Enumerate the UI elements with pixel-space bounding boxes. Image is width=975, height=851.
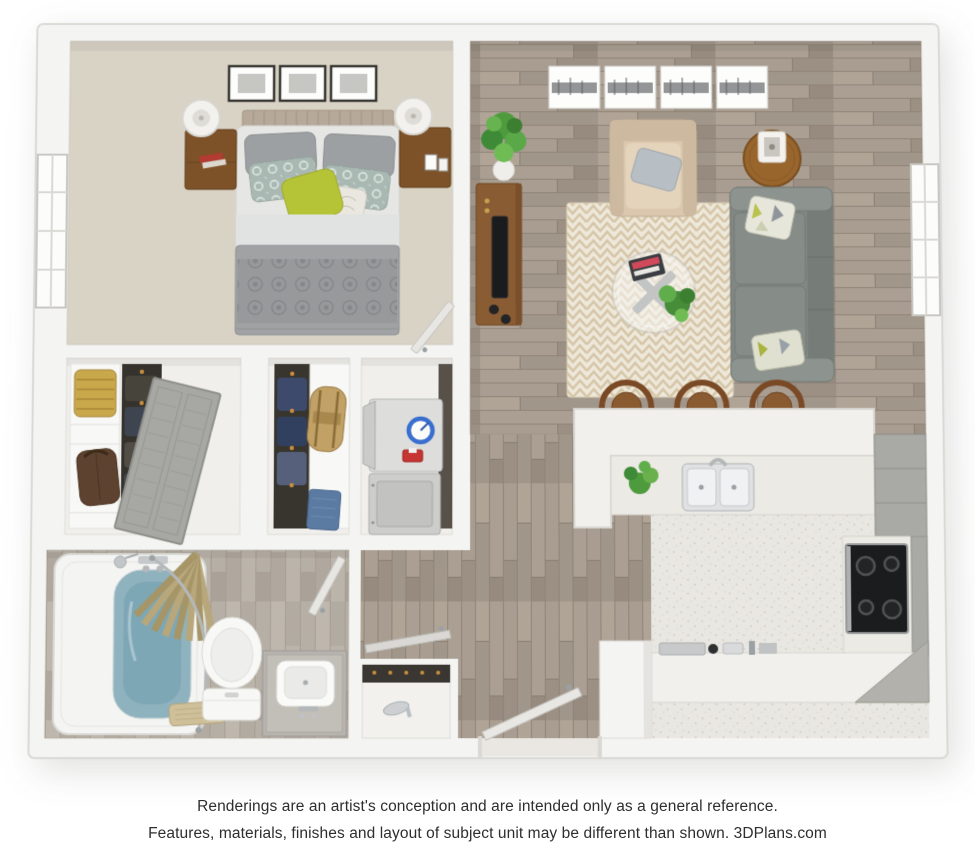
- disclaimer-line-2: Features, materials, finishes and layout…: [0, 822, 975, 846]
- disclaimer-line-1: Renderings are an artist's conception an…: [0, 795, 975, 819]
- nightstand-left: [185, 130, 237, 190]
- closet-middle: [274, 364, 350, 531]
- framed-pictures: [229, 66, 376, 101]
- plant-pot: [493, 159, 515, 180]
- coffee-table: [612, 251, 695, 333]
- double-sink: [682, 460, 754, 511]
- speaker: [489, 305, 499, 315]
- front-door-threshold: [480, 738, 600, 756]
- washer: [363, 399, 442, 471]
- upper-cabinets: [874, 434, 927, 536]
- toilet: [202, 617, 263, 720]
- geometric-pillow-bottom: [751, 329, 806, 371]
- side-table: [743, 131, 800, 187]
- cabinet-strip: [911, 536, 928, 656]
- tv-stand: [476, 184, 521, 325]
- folded-sheet: [236, 214, 400, 247]
- dryer: [369, 473, 441, 534]
- table-lamp-right: [395, 98, 432, 135]
- armchair: [610, 120, 697, 216]
- damask-duvet-band: [237, 259, 397, 323]
- floorplan-3d-render: [0, 18, 975, 790]
- floorplan-svg: [0, 18, 975, 790]
- entry-partition-wall: [600, 641, 652, 738]
- tv: [492, 216, 508, 297]
- shower-head: [114, 556, 126, 568]
- oven-handle: [847, 546, 852, 631]
- speaker: [501, 314, 511, 324]
- hanging-clothes-middle: [274, 364, 311, 529]
- vanity: [262, 651, 346, 736]
- floorplan-page: Renderings are an artist's conception an…: [0, 0, 975, 851]
- table-lamp-left: [182, 100, 220, 137]
- living-room-window: [911, 164, 940, 315]
- duffel-bag: [306, 385, 347, 452]
- folded-jeans: [306, 489, 341, 530]
- leather-bag: [76, 448, 121, 507]
- bed: [235, 110, 400, 334]
- stove-cooktop: [846, 544, 909, 633]
- woven-basket: [74, 370, 116, 417]
- nightstand-right: [399, 128, 450, 188]
- disclaimer: Renderings are an artist's conception an…: [0, 792, 975, 849]
- bedroom-window: [36, 155, 67, 308]
- washer-dial: [409, 419, 433, 442]
- vanity-faucet: [298, 706, 318, 711]
- washer-door-open: [363, 401, 375, 470]
- sofa: [730, 187, 834, 381]
